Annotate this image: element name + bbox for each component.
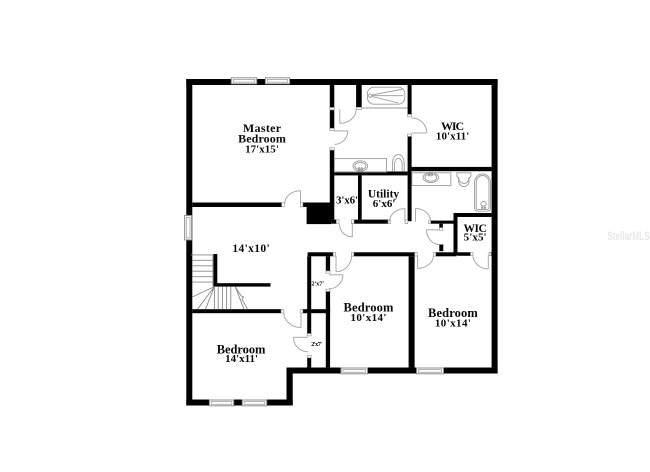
svg-text:17'x15': 17'x15' [245,143,279,155]
svg-text:2'x7': 2'x7' [311,281,324,288]
svg-text:6'x6': 6'x6' [373,198,396,210]
svg-text:3'x6': 3'x6' [336,195,358,207]
svg-text:5'x5': 5'x5' [464,232,487,244]
svg-text:StellarMLS: StellarMLS [608,231,650,243]
svg-text:14'x11': 14'x11' [225,353,258,365]
svg-text:10'x14': 10'x14' [435,318,471,330]
svg-text:10'x14': 10'x14' [351,312,387,324]
svg-text:2'x7': 2'x7' [311,341,322,348]
svg-text:14'x10': 14'x10' [232,243,269,255]
svg-text:10'x11': 10'x11' [436,130,469,142]
